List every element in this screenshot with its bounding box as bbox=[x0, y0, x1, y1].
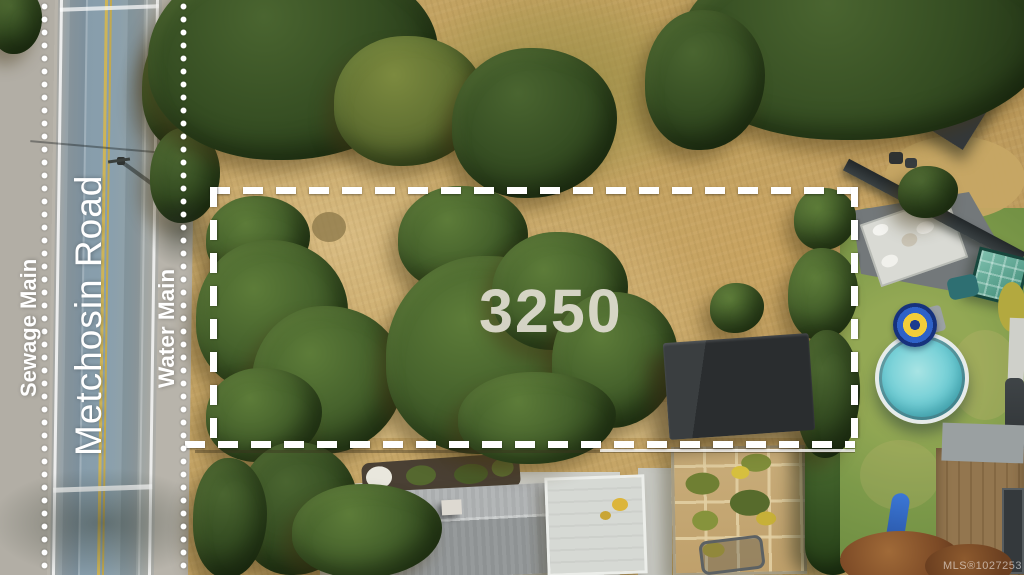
pool-float bbox=[893, 303, 937, 347]
dirt-patch bbox=[312, 212, 346, 242]
garden-flowers-yellow bbox=[731, 466, 749, 479]
road-name-label: Metchosin Road bbox=[68, 178, 112, 456]
patio-chair-white bbox=[880, 253, 900, 270]
bottom-left-tree bbox=[193, 458, 267, 575]
property-boundary-bottom bbox=[185, 441, 855, 448]
chimney bbox=[441, 499, 462, 515]
aerial-photo: Sewage Main Metchosin Road Water Main 32… bbox=[0, 0, 1024, 575]
shrub bbox=[453, 463, 488, 485]
patio-chair-white bbox=[915, 219, 936, 236]
patio-chair-white bbox=[871, 222, 890, 238]
garden-frame bbox=[698, 534, 766, 575]
garden-flowers-yellow bbox=[756, 511, 776, 525]
garden-plants bbox=[685, 472, 719, 495]
property-boundary-right bbox=[851, 187, 858, 445]
mls-watermark: MLS®1027253 bbox=[943, 560, 1022, 572]
shrub bbox=[405, 464, 436, 486]
sewage-main-label: Sewage Main bbox=[16, 252, 46, 404]
deck-roof bbox=[941, 423, 1024, 464]
white-deck bbox=[544, 474, 647, 575]
storage-bin bbox=[889, 152, 903, 164]
bottom-left-tree bbox=[292, 484, 442, 575]
white-fence-rail bbox=[600, 449, 855, 452]
property-boundary-left bbox=[210, 187, 217, 448]
water-main-label: Water Main bbox=[154, 258, 184, 398]
storage-bin bbox=[905, 158, 917, 168]
patio-umbrella-yellow bbox=[612, 498, 628, 511]
property-boundary-top bbox=[210, 187, 854, 194]
lot-number-label: 3250 bbox=[479, 281, 623, 342]
patio-chair-yellow bbox=[600, 511, 611, 520]
shed-roof bbox=[663, 333, 815, 440]
patio-table bbox=[900, 231, 919, 249]
garden-plants bbox=[692, 510, 718, 530]
